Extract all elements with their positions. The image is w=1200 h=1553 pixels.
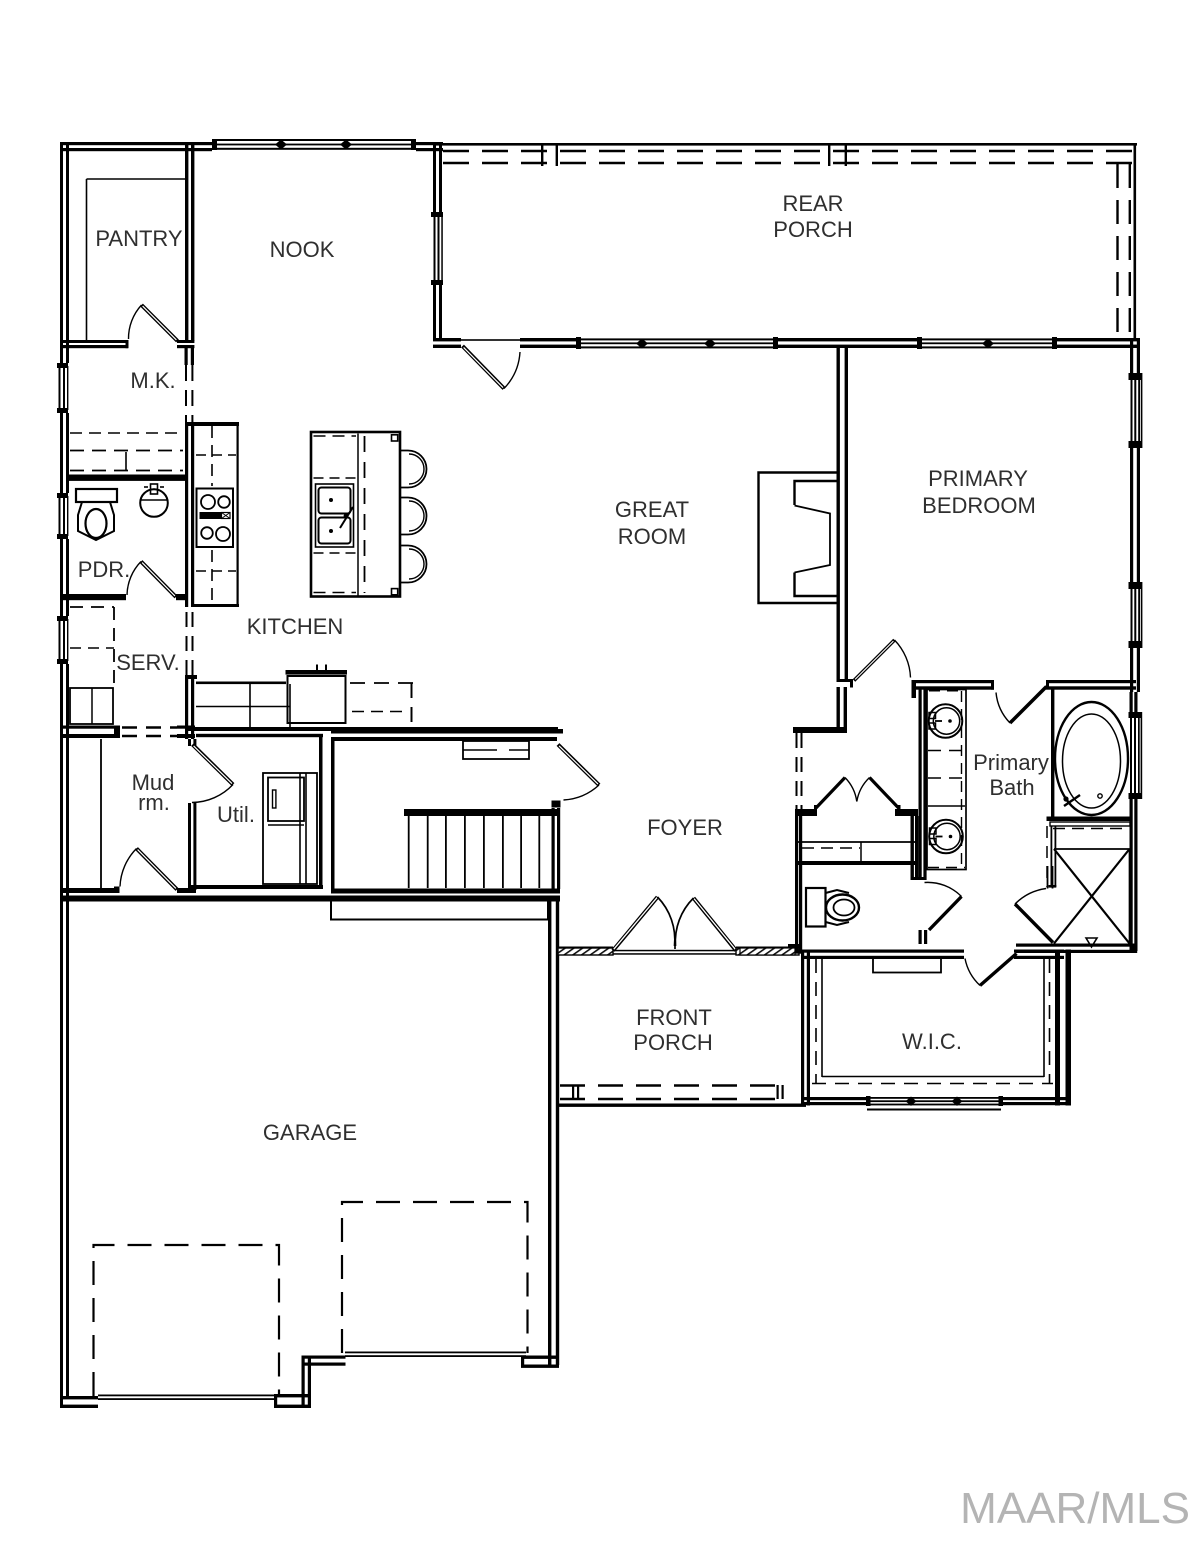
svg-text:PORCH: PORCH — [633, 1030, 712, 1055]
svg-text:Util.: Util. — [217, 802, 255, 827]
svg-text:FRONT: FRONT — [636, 1005, 712, 1030]
svg-text:PORCH: PORCH — [773, 217, 852, 242]
svg-text:BEDROOM: BEDROOM — [922, 493, 1036, 518]
svg-text:FOYER: FOYER — [647, 815, 723, 840]
svg-text:GARAGE: GARAGE — [263, 1120, 357, 1145]
svg-text:PRIMARY: PRIMARY — [928, 466, 1028, 491]
svg-text:PDR.: PDR. — [78, 557, 131, 582]
svg-text:Primary: Primary — [973, 750, 1049, 775]
svg-text:ROOM: ROOM — [618, 524, 686, 549]
svg-text:PANTRY: PANTRY — [95, 226, 183, 251]
svg-text:NOOK: NOOK — [270, 237, 335, 262]
svg-text:KITCHEN: KITCHEN — [247, 614, 344, 639]
svg-text:REAR: REAR — [782, 191, 843, 216]
svg-text:M.K.: M.K. — [130, 368, 175, 393]
svg-text:W.I.C.: W.I.C. — [902, 1029, 962, 1054]
svg-text:GREAT: GREAT — [615, 497, 689, 522]
svg-text:rm.: rm. — [138, 790, 170, 815]
svg-text:SERV.: SERV. — [116, 650, 180, 675]
svg-text:MAAR/MLS: MAAR/MLS — [960, 1484, 1190, 1533]
svg-text:Bath: Bath — [989, 775, 1034, 800]
